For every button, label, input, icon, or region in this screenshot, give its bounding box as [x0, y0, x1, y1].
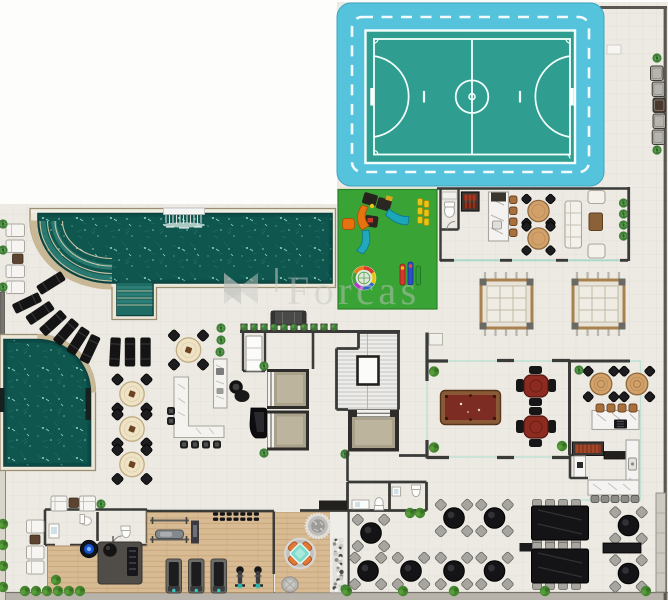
svg-text:Forcas: Forcas [287, 268, 421, 313]
